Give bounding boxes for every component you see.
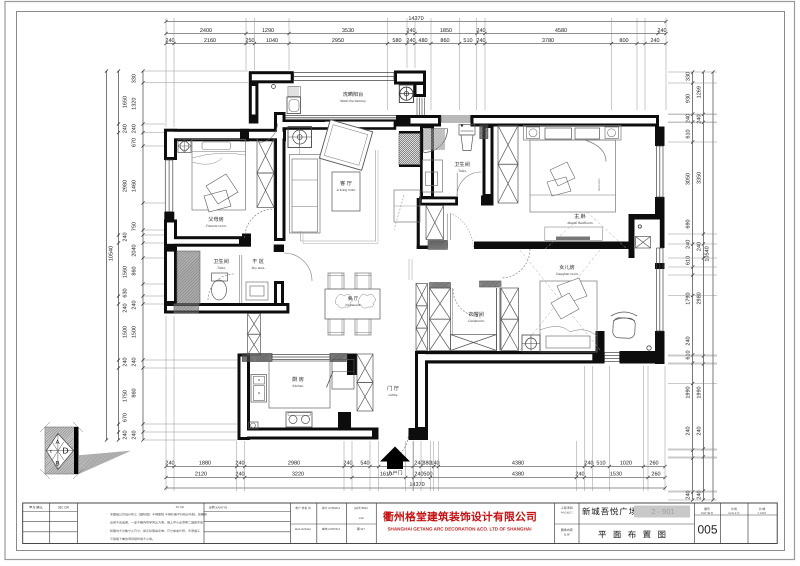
svg-text:240: 240 xyxy=(123,357,129,366)
svg-text:750: 750 xyxy=(132,222,138,231)
svg-text:240: 240 xyxy=(132,430,138,439)
svg-text:父母房: 父母房 xyxy=(208,216,224,223)
svg-text:(其无 8012: (其无 8012 xyxy=(354,506,368,510)
svg-text:客户 姓名 刘: 客户 姓名 刘 xyxy=(295,506,311,510)
svg-text:3220: 3220 xyxy=(292,472,304,478)
svg-text:1790: 1790 xyxy=(686,292,692,304)
svg-text:240: 240 xyxy=(123,303,129,312)
svg-text:知图内不示数寸之尺寸，如实际值或来准，尺寸加发计师，专项施工: 知图内不示数寸之尺寸，如实际值或来准，尺寸加发计师，专项施工 xyxy=(110,529,200,533)
svg-text:240: 240 xyxy=(686,426,692,435)
svg-text:1880: 1880 xyxy=(199,461,211,467)
svg-text:1750: 1750 xyxy=(123,390,129,402)
svg-text:670: 670 xyxy=(123,413,129,422)
svg-text:-A living room-: -A living room- xyxy=(336,188,356,192)
svg-text:2400: 2400 xyxy=(200,28,212,34)
svg-text:-Kitchen-: -Kitchen- xyxy=(292,384,305,388)
svg-text:1650: 1650 xyxy=(123,96,129,108)
svg-text:-Toilet-: -Toilet- xyxy=(216,266,226,270)
svg-text:4380: 4380 xyxy=(512,472,524,478)
svg-text:出现不合或阅，一定不器内有学问正为准，施工中小必须理二施成本: 出现不合或阅，一定不器内有学问正为准，施工中小必须理二施成本意 xyxy=(110,521,203,525)
svg-text:洗晒阳台: 洗晒阳台 xyxy=(343,91,364,98)
svg-text:比例: 比例 xyxy=(731,507,737,511)
svg-text:610: 610 xyxy=(686,256,692,265)
svg-text:餐 厅: 餐 厅 xyxy=(348,296,359,301)
svg-text:1269: 1269 xyxy=(696,86,702,98)
svg-text:240: 240 xyxy=(165,38,174,44)
svg-text:240: 240 xyxy=(476,28,485,34)
svg-text:240: 240 xyxy=(123,232,129,241)
svg-text:1530: 1530 xyxy=(610,472,622,478)
svg-text:2980: 2980 xyxy=(288,461,300,467)
svg-text:1560: 1560 xyxy=(123,266,129,278)
svg-text:衣帽间: 衣帽间 xyxy=(468,311,484,318)
svg-text:-Dry area-: -Dry area- xyxy=(251,266,265,270)
svg-text:240: 240 xyxy=(414,472,423,478)
svg-text:240: 240 xyxy=(650,38,659,44)
svg-text:-Cloakroom-: -Cloakroom- xyxy=(467,319,485,323)
svg-text:14370: 14370 xyxy=(409,482,424,488)
svg-text:510: 510 xyxy=(463,38,472,44)
svg-text:2120: 2120 xyxy=(195,472,207,478)
svg-text:930: 930 xyxy=(686,94,692,103)
svg-text:1020: 1020 xyxy=(620,461,632,467)
svg-text:女儿房: 女儿房 xyxy=(559,264,575,271)
svg-text:SCALE 比: SCALE 比 xyxy=(728,511,740,515)
svg-text:D: D xyxy=(62,446,68,456)
svg-text:260: 260 xyxy=(649,461,658,467)
svg-text:2 - 901: 2 - 901 xyxy=(651,507,674,516)
svg-text:240: 240 xyxy=(132,357,138,366)
svg-text:DWF 编 号: DWF 编 号 xyxy=(701,511,714,515)
svg-text:690: 690 xyxy=(686,219,692,228)
svg-text:-Wash the balcony-: -Wash the balcony- xyxy=(339,99,366,103)
svg-text:3350: 3350 xyxy=(696,172,702,184)
svg-text:合同 KANT'IN: 合同 KANT'IN xyxy=(209,506,227,510)
svg-text:240: 240 xyxy=(686,240,692,249)
svg-text:14370: 14370 xyxy=(408,16,423,22)
svg-text:衢州格堂建筑装饰设计有限公司: 衢州格堂建筑装饰设计有限公司 xyxy=(383,511,537,524)
svg-text:800: 800 xyxy=(619,38,628,44)
svg-text:设计 #73318 Z: 设计 #73318 Z xyxy=(322,506,340,510)
svg-text:日 期: 日 期 xyxy=(759,507,766,511)
svg-text:240: 240 xyxy=(132,124,138,133)
svg-text:610: 610 xyxy=(686,129,692,138)
svg-text:厨 房: 厨 房 xyxy=(292,376,304,383)
svg-text:240: 240 xyxy=(165,461,174,467)
svg-text:1290: 1290 xyxy=(262,28,274,34)
svg-text:三验施下单位项目组织用不之用。: 三验施下单位项目组织用不之用。 xyxy=(110,537,155,541)
svg-text:1500: 1500 xyxy=(132,326,138,338)
svg-text:0 DATE: 0 DATE xyxy=(758,512,767,515)
svg-text:240: 240 xyxy=(132,300,138,309)
svg-text:240: 240 xyxy=(696,426,702,435)
svg-text:SHANGHAI GETANG ARC DECORATION: SHANGHAI GETANG ARC DECORATION &CO. LTD … xyxy=(387,527,531,532)
svg-text:-Restaurant-: -Restaurant- xyxy=(345,303,362,307)
svg-text:240: 240 xyxy=(686,336,692,345)
svg-text:4580: 4580 xyxy=(555,28,567,34)
svg-text:860: 860 xyxy=(132,388,138,397)
svg-text:860: 860 xyxy=(440,38,449,44)
svg-text:1500: 1500 xyxy=(123,326,129,338)
svg-text:510: 510 xyxy=(596,461,605,467)
svg-text:240: 240 xyxy=(123,124,129,133)
svg-text:2040: 2040 xyxy=(132,244,138,256)
svg-text:2980: 2980 xyxy=(696,292,702,304)
svg-text:580: 580 xyxy=(392,38,401,44)
svg-text:B: B xyxy=(55,461,59,468)
svg-text:新城吾悦广场: 新城吾悦广场 xyxy=(582,507,638,517)
svg-text:-Toilet-: -Toilet- xyxy=(457,169,467,173)
svg-text:240: 240 xyxy=(657,28,666,34)
svg-text:日C DR: 日C DR xyxy=(58,506,70,510)
svg-text:甲方 确认: 甲方 确认 xyxy=(29,506,43,510)
svg-text:-Parents room-: -Parents room- xyxy=(205,224,226,228)
svg-text:10540: 10540 xyxy=(109,246,115,261)
svg-text:卫生间: 卫生间 xyxy=(213,258,229,265)
svg-text:-Daughter room-: -Daughter room- xyxy=(555,272,578,276)
svg-text:480: 480 xyxy=(418,38,427,44)
svg-text:2950: 2950 xyxy=(332,38,344,44)
svg-text:330: 330 xyxy=(686,72,692,81)
svg-text:图 WT: 图 WT xyxy=(357,527,365,531)
svg-text:主 卧: 主 卧 xyxy=(574,213,586,220)
svg-text:630: 630 xyxy=(123,288,129,297)
svg-text:250: 250 xyxy=(245,38,254,44)
svg-text:1:98: 1:98 xyxy=(358,517,364,520)
svg-text:005: 005 xyxy=(697,523,717,537)
svg-text:1320: 1320 xyxy=(132,98,138,110)
svg-text:500: 500 xyxy=(423,472,432,478)
svg-text:860: 860 xyxy=(132,266,138,275)
svg-text:入户门: 入户门 xyxy=(387,470,402,477)
svg-text:240: 240 xyxy=(406,38,415,44)
svg-text:1040: 1040 xyxy=(266,38,278,44)
svg-text:4380: 4380 xyxy=(512,461,524,467)
svg-text:干 区: 干 区 xyxy=(252,258,264,265)
svg-text:MZA 0600116: MZA 0600116 xyxy=(295,528,312,531)
svg-text:卫生间: 卫生间 xyxy=(454,161,470,168)
svg-text:260: 260 xyxy=(651,472,660,478)
svg-text:审核 #70978 Z: 审核 #70978 Z xyxy=(322,527,340,531)
svg-text:240: 240 xyxy=(575,472,584,478)
svg-text:240: 240 xyxy=(343,461,352,467)
svg-text:平 面 布 置 图: 平 面 布 置 图 xyxy=(598,530,668,540)
svg-text:1850: 1850 xyxy=(440,28,452,34)
svg-text:240: 240 xyxy=(123,430,129,439)
svg-text:1990: 1990 xyxy=(696,386,702,398)
svg-text:240: 240 xyxy=(406,28,415,34)
svg-text:540: 540 xyxy=(360,461,369,467)
svg-text:图纸内容: 图纸内容 xyxy=(561,528,573,532)
svg-text:-Lobby-: -Lobby- xyxy=(388,393,399,397)
svg-text:3050: 3050 xyxy=(686,173,692,185)
svg-text:240: 240 xyxy=(476,38,485,44)
svg-text:A: A xyxy=(55,439,59,446)
svg-text:240: 240 xyxy=(696,242,702,251)
svg-text:1800x2000: 1800x2000 xyxy=(598,178,601,191)
svg-text:1990: 1990 xyxy=(686,386,692,398)
svg-text:2980: 2980 xyxy=(123,180,129,192)
svg-text:PROJECT: PROJECT xyxy=(561,512,574,515)
svg-text:-Master BedRoom-: -Master BedRoom- xyxy=(567,221,594,225)
svg-text:5C 6FI: 5C 6FI xyxy=(176,505,185,509)
svg-text:240: 240 xyxy=(686,114,692,123)
svg-text:3530: 3530 xyxy=(342,28,354,34)
svg-text:图号: 图号 xyxy=(704,507,710,511)
svg-text:2160: 2160 xyxy=(204,38,216,44)
svg-text:本图纸公司设计作之《国际版》不得复制 不得抄袭平行线分节制，: 本图纸公司设计作之《国际版》不得复制 不得抄袭平行线分节制，如需经 xyxy=(110,513,207,517)
svg-text:门 厅: 门 厅 xyxy=(387,385,399,392)
svg-text:330: 330 xyxy=(132,74,138,83)
svg-text:1460: 1460 xyxy=(132,180,138,192)
svg-text:3780: 3780 xyxy=(542,38,554,44)
svg-text:670: 670 xyxy=(132,138,138,147)
svg-text:10540: 10540 xyxy=(705,246,711,261)
svg-text:客 厅: 客 厅 xyxy=(340,180,352,187)
svg-text:名 称: 名 称 xyxy=(564,533,570,537)
svg-text:工程项目: 工程项目 xyxy=(561,506,573,510)
